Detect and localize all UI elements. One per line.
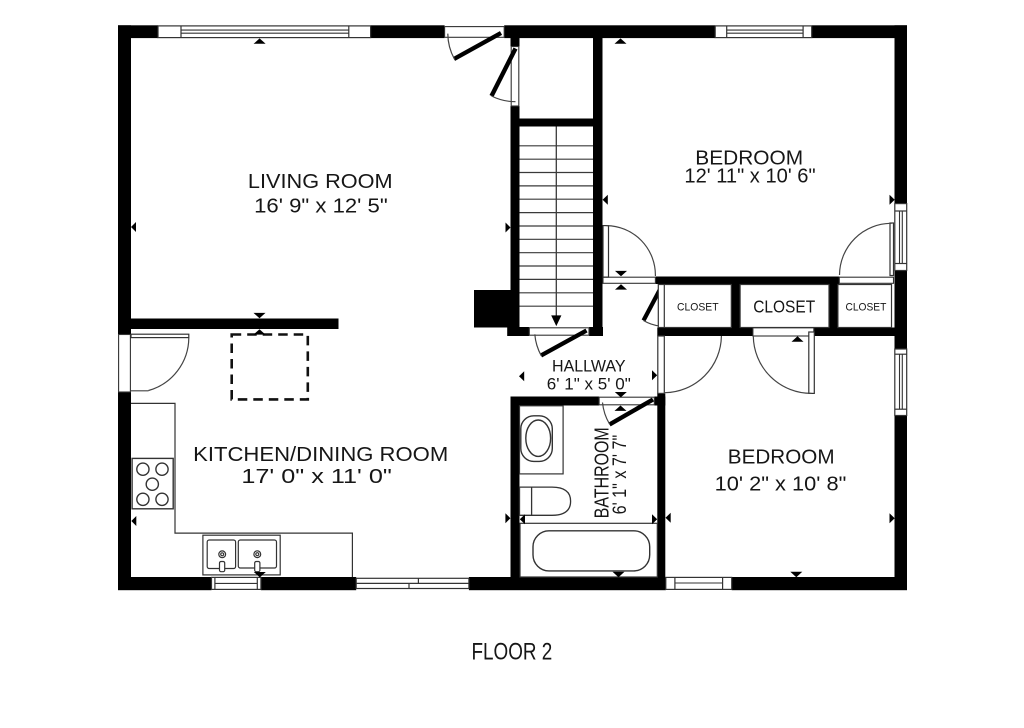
svg-text:16' 9" x 12' 5": 16' 9" x 12' 5" (254, 194, 388, 217)
svg-text:17' 0" x 11' 0": 17' 0" x 11' 0" (241, 465, 391, 488)
svg-text:10' 2" x 10' 8": 10' 2" x 10' 8" (715, 473, 847, 496)
svg-text:HALLWAY: HALLWAY (552, 357, 626, 376)
svg-text:12' 11" x 10' 6": 12' 11" x 10' 6" (684, 164, 815, 187)
svg-text:CLOSET: CLOSET (677, 302, 719, 314)
svg-text:BEDROOM: BEDROOM (728, 446, 835, 469)
svg-text:CLOSET: CLOSET (753, 296, 815, 316)
svg-text:CLOSET: CLOSET (845, 301, 886, 313)
svg-text:LIVING ROOM: LIVING ROOM (248, 170, 393, 193)
svg-text:KITCHEN/DINING ROOM: KITCHEN/DINING ROOM (193, 443, 448, 466)
svg-text:6' 1" x 5' 0": 6' 1" x 5' 0" (547, 374, 631, 393)
svg-text:FLOOR 2: FLOOR 2 (472, 638, 553, 665)
svg-text:6' 1" x 7' 7": 6' 1" x 7' 7" (610, 435, 631, 515)
